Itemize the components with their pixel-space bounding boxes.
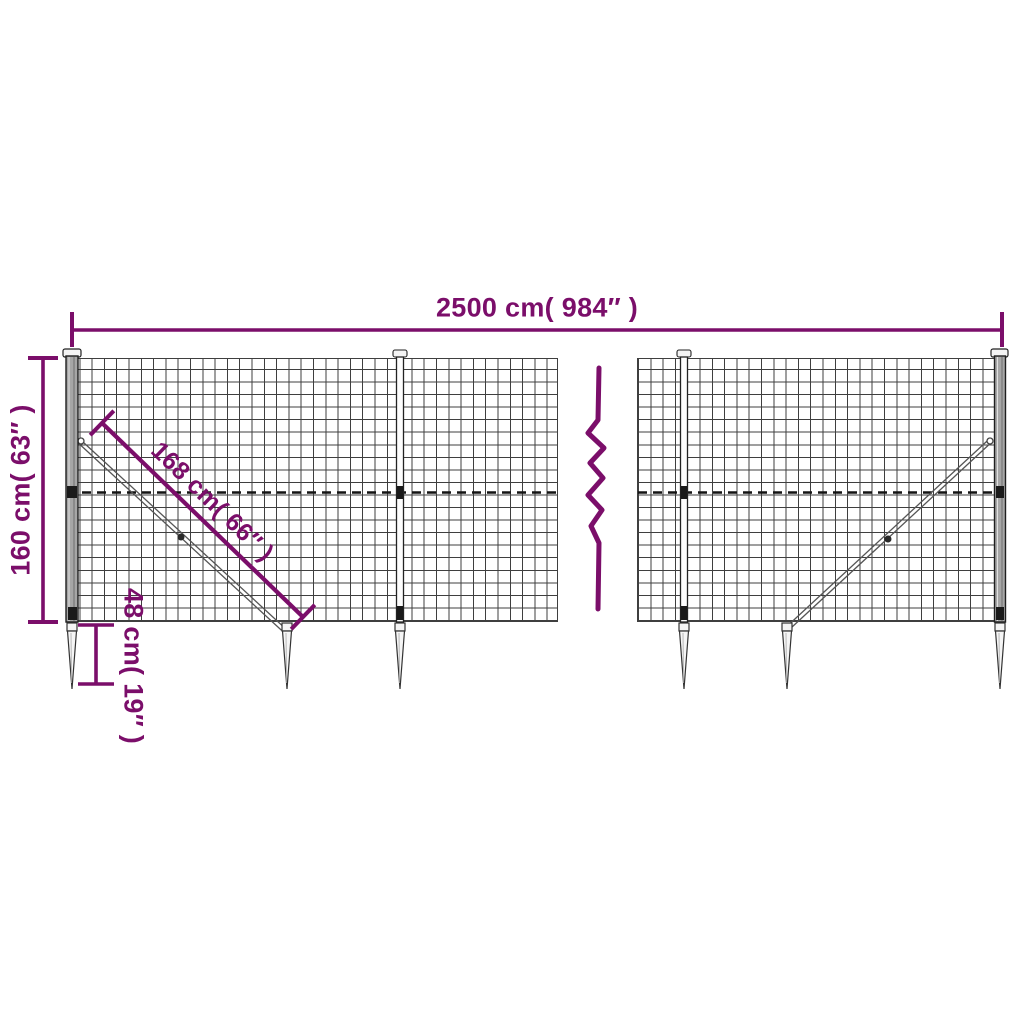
fence-post-left xyxy=(63,349,81,622)
fence-post-right-panel-left xyxy=(677,350,691,622)
fence-post-right xyxy=(991,349,1008,622)
total-height-label: 160 cm( 63″ ) xyxy=(6,404,37,575)
total-width-label: 2500 cm( 984″ ) xyxy=(436,293,638,324)
ground-spike xyxy=(282,623,292,689)
fence-dimension-diagram: 2500 cm( 984″ ) 160 cm( 63″ ) 168 cm( 66… xyxy=(0,0,1024,1024)
support-brace-right xyxy=(786,438,993,630)
break-line-symbol xyxy=(588,368,604,609)
fence-structure-drawing xyxy=(0,0,1024,1024)
fence-post-middle xyxy=(393,350,407,622)
ground-spike xyxy=(67,623,77,689)
ground-spike xyxy=(395,623,405,689)
ground-spike xyxy=(679,623,689,689)
ground-spike xyxy=(782,623,792,689)
anchor-depth-label: 48 cm( 19″ ) xyxy=(118,588,149,744)
dimension-anchor-depth xyxy=(78,625,114,684)
ground-spike xyxy=(995,623,1005,689)
ground-spikes xyxy=(67,623,1005,689)
